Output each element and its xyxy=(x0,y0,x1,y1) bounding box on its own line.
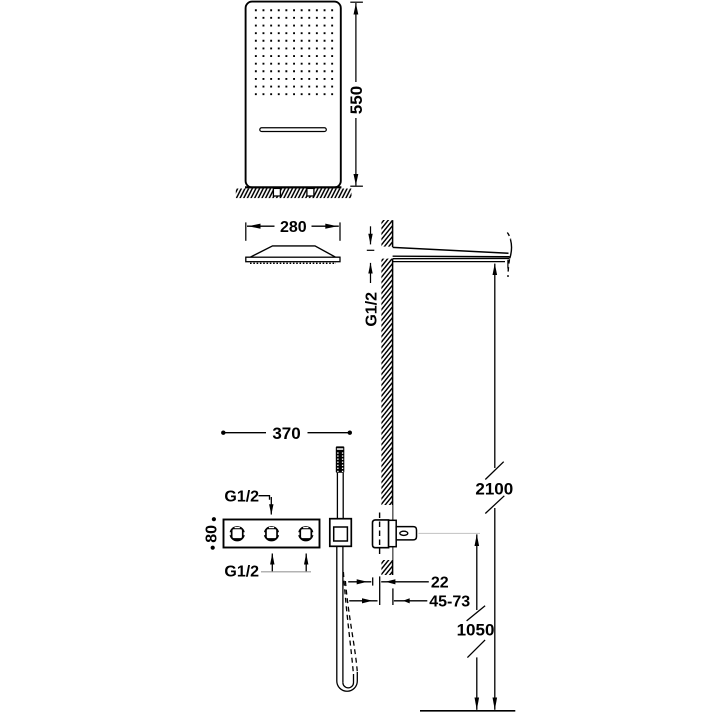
svg-text:550: 550 xyxy=(347,86,366,114)
svg-text:280: 280 xyxy=(280,219,307,236)
svg-text:370: 370 xyxy=(272,424,300,443)
svg-text:2100: 2100 xyxy=(475,480,513,499)
svg-text:G1/2: G1/2 xyxy=(364,292,381,327)
svg-text:22: 22 xyxy=(431,574,449,591)
svg-text:G1/2: G1/2 xyxy=(224,563,259,580)
svg-text:80: 80 xyxy=(204,525,221,543)
svg-text:G1/2: G1/2 xyxy=(224,488,259,505)
svg-text:45-73: 45-73 xyxy=(429,593,470,610)
svg-text:1050: 1050 xyxy=(457,621,495,640)
